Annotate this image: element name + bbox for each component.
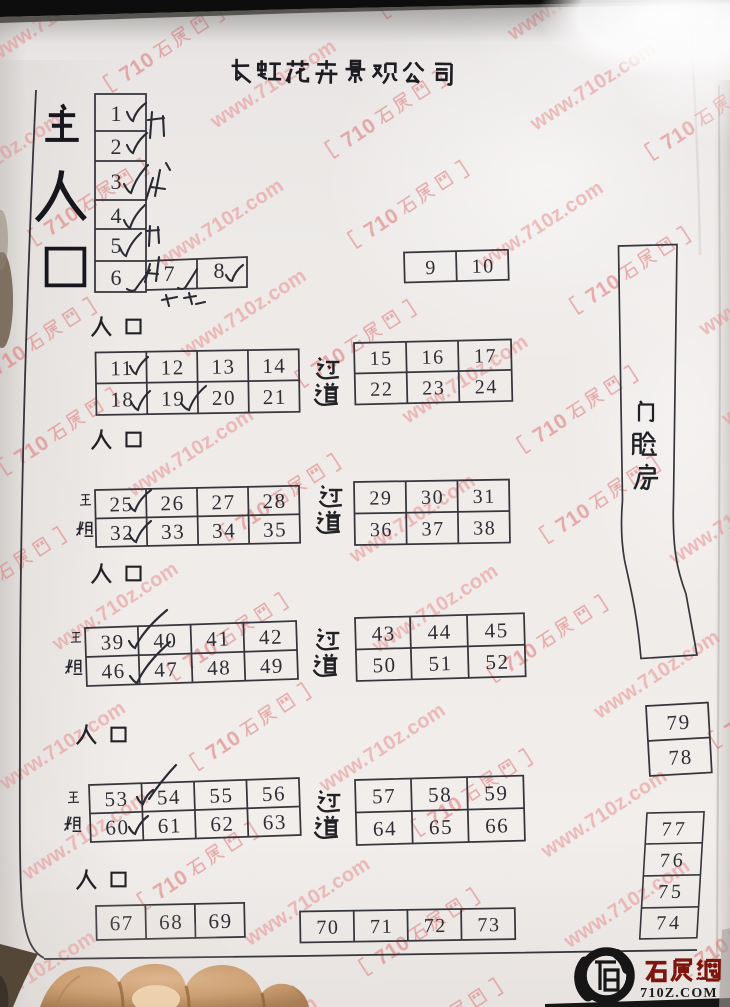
svg-text:27: 27: [211, 490, 236, 515]
svg-text:66: 66: [485, 813, 510, 838]
svg-text:47: 47: [154, 657, 179, 682]
svg-text:45: 45: [484, 618, 509, 643]
svg-text:38: 38: [473, 517, 497, 539]
svg-text:58: 58: [428, 782, 453, 807]
svg-text:49: 49: [259, 654, 284, 679]
svg-text:76: 76: [659, 849, 686, 872]
svg-text:55: 55: [209, 783, 234, 808]
svg-text:15: 15: [369, 348, 393, 371]
svg-text:6: 6: [111, 265, 122, 290]
svg-text:17: 17: [474, 345, 498, 368]
svg-text:29: 29: [369, 487, 393, 509]
svg-text:9: 9: [425, 257, 437, 279]
svg-text:51: 51: [428, 651, 453, 676]
svg-text:14: 14: [262, 354, 287, 378]
svg-text:1: 1: [111, 101, 122, 126]
svg-text:56: 56: [261, 781, 286, 806]
svg-text:16: 16: [421, 346, 445, 369]
svg-text:65: 65: [429, 815, 454, 840]
svg-text:30: 30: [421, 486, 445, 508]
svg-text:7: 7: [164, 261, 175, 286]
svg-text:40: 40: [153, 628, 178, 653]
svg-text:21: 21: [263, 385, 288, 409]
svg-text:71: 71: [370, 916, 394, 938]
svg-text:35: 35: [263, 517, 288, 542]
svg-text:4: 4: [111, 203, 122, 228]
svg-text:52: 52: [485, 650, 510, 675]
svg-text:37: 37: [421, 518, 445, 540]
svg-text:10: 10: [471, 255, 495, 278]
svg-text:57: 57: [372, 784, 397, 809]
svg-text:20: 20: [212, 386, 237, 410]
svg-text:19: 19: [161, 386, 186, 410]
svg-text:36: 36: [370, 519, 394, 541]
svg-text:13: 13: [211, 354, 236, 378]
svg-text:62: 62: [210, 812, 235, 837]
svg-text:69: 69: [208, 909, 233, 934]
svg-text:78: 78: [668, 745, 694, 770]
svg-text:28: 28: [262, 489, 287, 514]
svg-text:79: 79: [666, 710, 692, 735]
svg-text:50: 50: [372, 653, 397, 678]
svg-text:64: 64: [373, 816, 398, 841]
svg-text:43: 43: [371, 621, 396, 646]
svg-text:710Z.COM: 710Z.COM: [640, 986, 718, 1001]
svg-text:60: 60: [105, 815, 130, 840]
svg-text:23: 23: [422, 377, 446, 400]
svg-text:75: 75: [657, 881, 684, 904]
svg-text:53: 53: [104, 786, 129, 811]
svg-text:22: 22: [370, 378, 394, 401]
svg-text:48: 48: [207, 655, 232, 680]
svg-text:54: 54: [156, 785, 181, 810]
svg-text:44: 44: [427, 620, 452, 645]
svg-text:24: 24: [474, 376, 498, 399]
svg-text:26: 26: [160, 491, 185, 516]
svg-text:32: 32: [110, 520, 135, 545]
svg-text:59: 59: [484, 781, 509, 806]
svg-text:77: 77: [661, 818, 688, 841]
svg-text:61: 61: [157, 813, 182, 838]
svg-text:2: 2: [111, 134, 122, 159]
svg-text:46: 46: [101, 659, 126, 684]
svg-text:12: 12: [160, 355, 185, 379]
svg-text:73: 73: [477, 914, 501, 936]
svg-text:34: 34: [212, 518, 237, 543]
svg-text:41: 41: [206, 626, 231, 651]
svg-text:63: 63: [262, 810, 287, 835]
svg-text:33: 33: [161, 519, 186, 544]
svg-text:70: 70: [316, 917, 340, 939]
svg-text:3: 3: [111, 169, 122, 194]
svg-text:42: 42: [259, 625, 284, 650]
svg-text:18: 18: [110, 387, 135, 411]
svg-text:5: 5: [111, 233, 122, 258]
svg-text:74: 74: [655, 912, 682, 935]
svg-text:72: 72: [424, 915, 448, 937]
svg-text:31: 31: [472, 486, 496, 508]
svg-text:39: 39: [100, 630, 125, 655]
svg-text:8: 8: [214, 258, 225, 283]
